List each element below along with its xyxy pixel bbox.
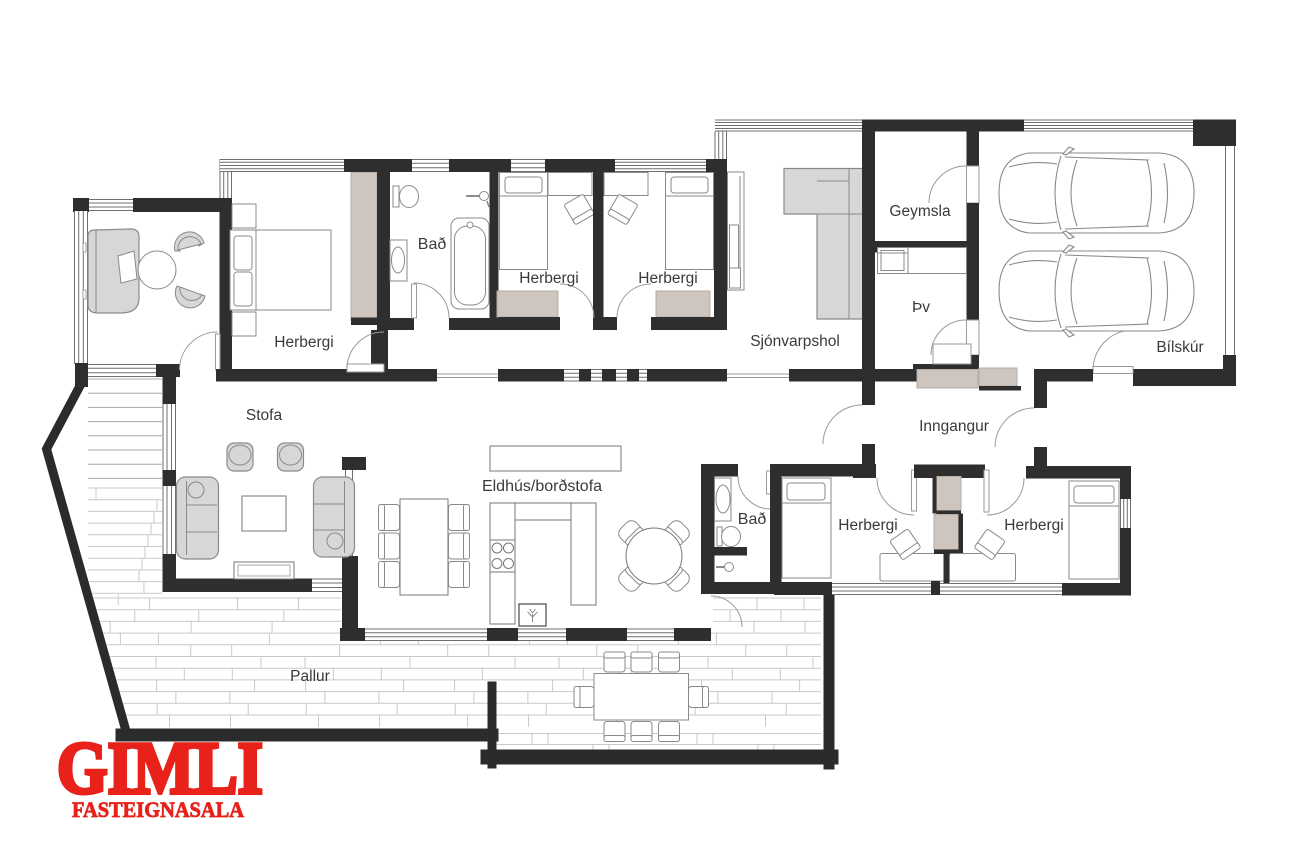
svg-text:Bílskúr: Bílskúr — [1156, 339, 1203, 356]
svg-text:Herbergi: Herbergi — [838, 517, 897, 534]
svg-text:Herbergi: Herbergi — [274, 334, 333, 351]
svg-text:Geymsla: Geymsla — [889, 203, 951, 220]
svg-text:Herbergi: Herbergi — [638, 270, 697, 287]
svg-text:Sjónvarpshol: Sjónvarpshol — [750, 333, 840, 350]
svg-text:Eldhús/borðstofa: Eldhús/borðstofa — [482, 478, 602, 495]
svg-text:Þv: Þv — [912, 299, 930, 316]
svg-text:FASTEIGNASALA: FASTEIGNASALA — [72, 797, 244, 822]
svg-text:Inngangur: Inngangur — [919, 418, 989, 435]
svg-text:Pallur: Pallur — [290, 668, 330, 685]
svg-text:Bað: Bað — [418, 236, 447, 253]
svg-text:Stofa: Stofa — [246, 407, 283, 424]
svg-text:Herbergi: Herbergi — [519, 270, 578, 287]
svg-text:Herbergi: Herbergi — [1004, 517, 1063, 534]
svg-text:Bað: Bað — [738, 511, 767, 528]
